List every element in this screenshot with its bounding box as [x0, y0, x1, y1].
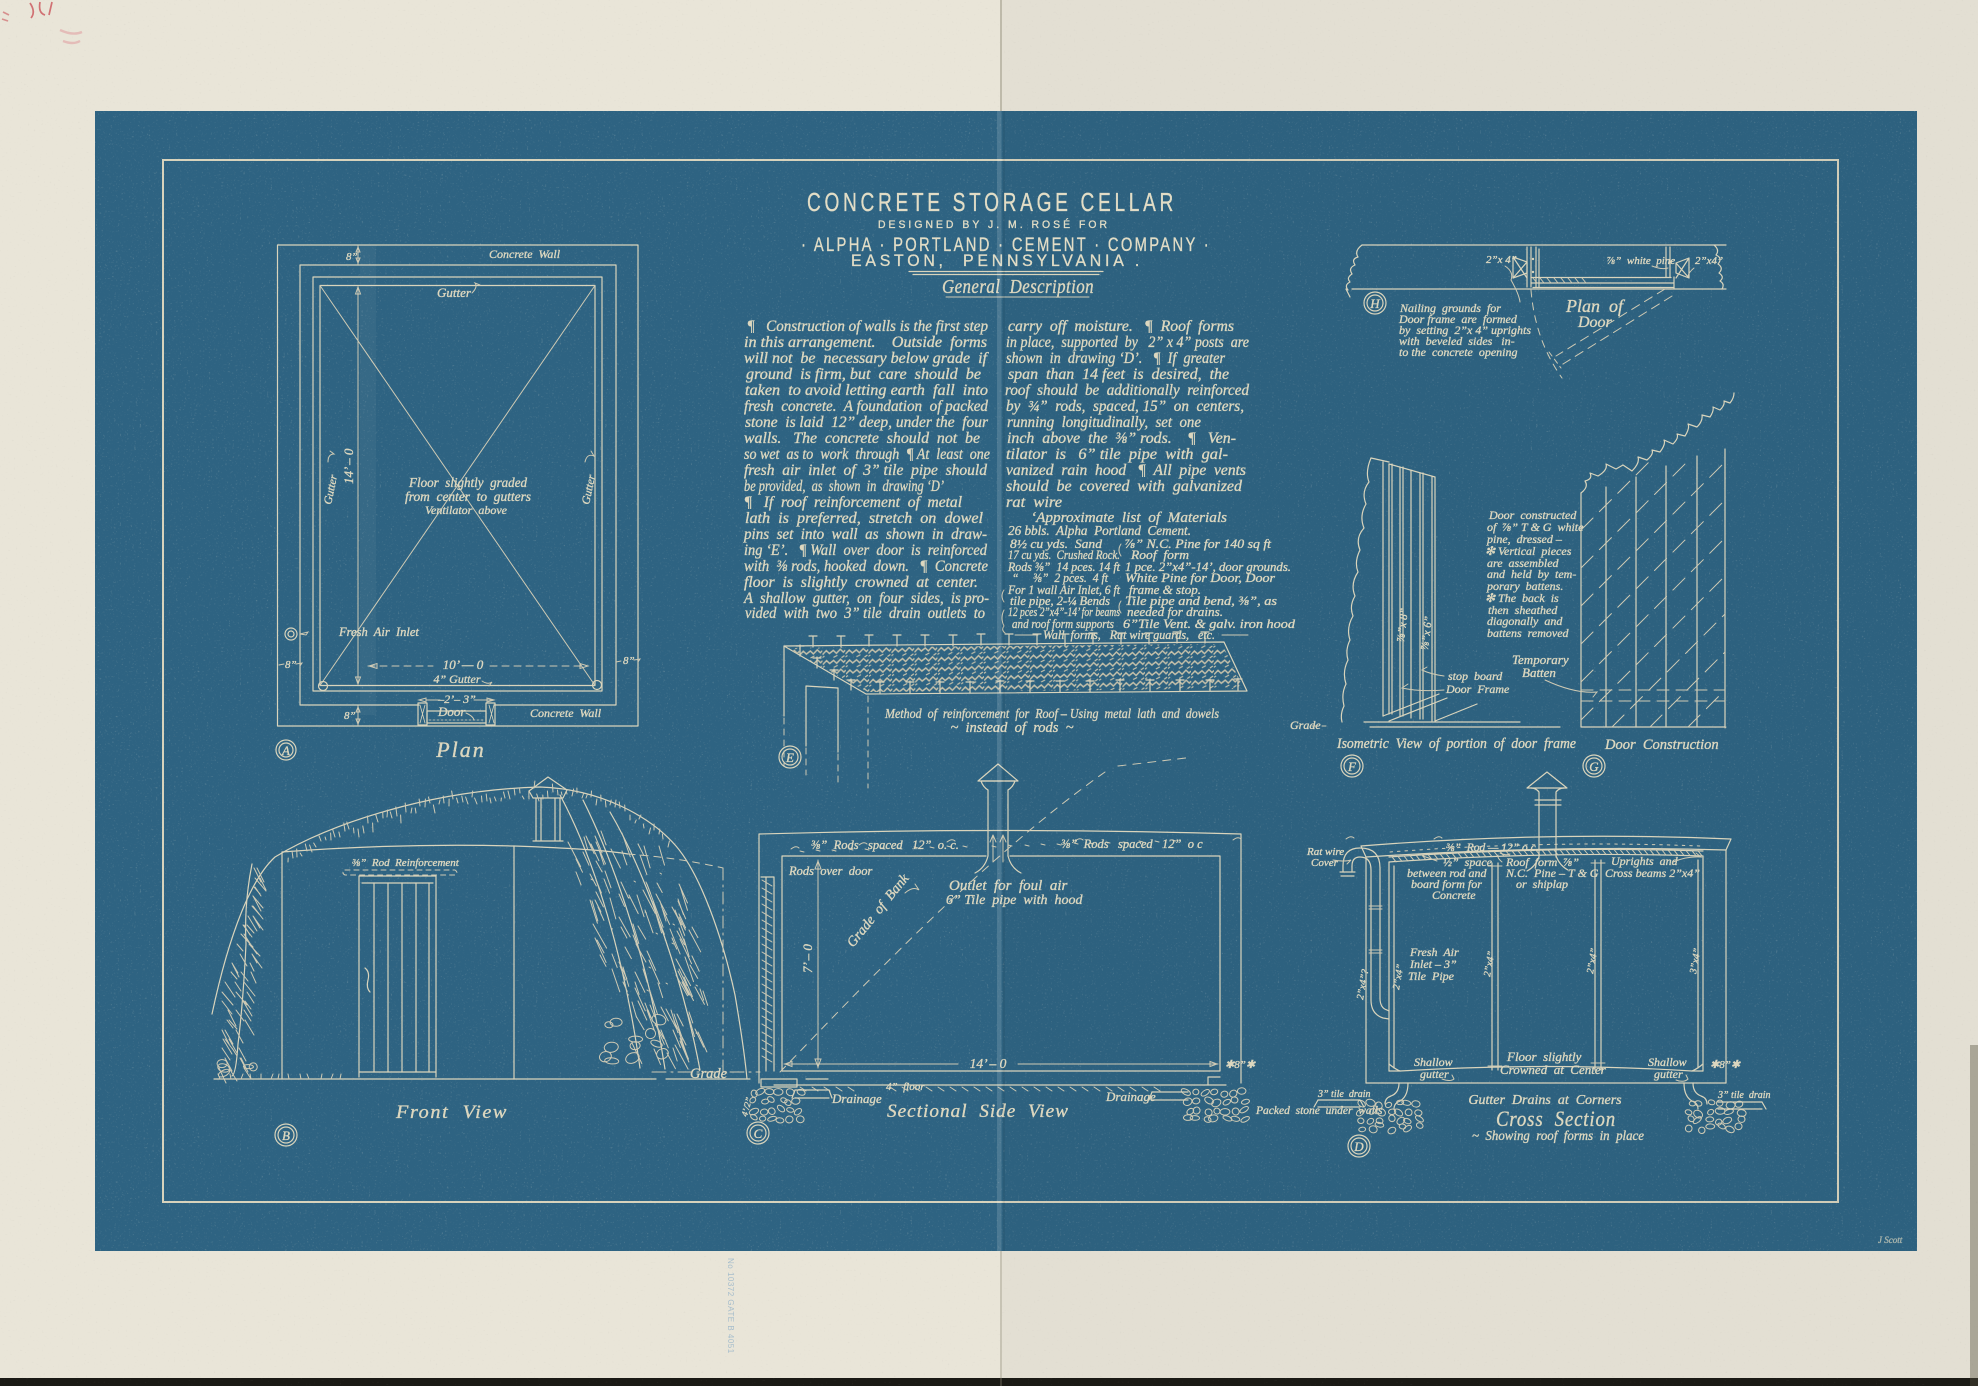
svg-text:to the concrete opening: to the concrete opening — [1399, 345, 1518, 359]
svg-text:✱8”✱: ✱8”✱ — [1225, 1059, 1256, 1071]
svg-text:ing ‘E’. ¶ Wall over door: ing ‘E’. ¶ Wall over door is reinforced — [744, 542, 987, 559]
svg-text:so wet as to work through: so wet as to work through ¶ At least one — [744, 446, 990, 463]
svg-text:Door: Door — [437, 704, 466, 719]
svg-text:Sectional Side View: Sectional Side View — [887, 1101, 1069, 1122]
svg-text:Cross beams 2”x4”: Cross beams 2”x4” — [1605, 866, 1700, 880]
svg-text:26 bbls. Alpha Portland Cem: 26 bbls. Alpha Portland Cement. — [1008, 523, 1191, 538]
svg-text:Door Construction: Door Construction — [1604, 737, 1719, 753]
svg-text:DESIGNED BY J. M. ROSÉ FOR: DESIGNED BY J. M. ROSÉ FOR — [878, 218, 1110, 231]
svg-text:10’ — 0: 10’ — 0 — [443, 657, 484, 672]
svg-text:Drainage: Drainage — [1105, 1089, 1156, 1104]
svg-text:in this arrangement. Outsid: in this arrangement. Outside forms — [744, 334, 987, 351]
svg-text:taken to avoid letting earth: taken to avoid letting earth fall into — [745, 382, 988, 399]
svg-text:inch above the ⅜” rods.: inch above the ⅜” rods. ¶ Ven- — [1007, 430, 1236, 447]
svg-text:walls. The concrete should: walls. The concrete should not be — [744, 430, 980, 447]
svg-text:Concrete Wall: Concrete Wall — [489, 247, 561, 261]
svg-text:Concrete: Concrete — [1432, 888, 1476, 902]
svg-text:8”: 8” — [346, 251, 358, 263]
svg-text:Fresh Air Inlet: Fresh Air Inlet — [338, 625, 419, 639]
svg-text:General Description: General Description — [942, 276, 1094, 298]
svg-text:by ¾” rods, spaced, 15” on: by ¾” rods, spaced, 15” on centers, — [1006, 398, 1244, 415]
svg-text:pins set into wall as sho: pins set into wall as shown in draw- — [743, 526, 987, 543]
svg-text:D: D — [1353, 1139, 1364, 1154]
svg-text:Crowned at Center: Crowned at Center — [1500, 1062, 1607, 1077]
svg-text:6” Tile pipe with hood: 6” Tile pipe with hood — [946, 893, 1084, 908]
svg-text:vanized rain hood ¶ All: vanized rain hood ¶ All pipe vents — [1006, 462, 1246, 479]
svg-text:B: B — [282, 1128, 290, 1143]
svg-text:E: E — [785, 750, 794, 765]
svg-text:gutter: gutter — [1420, 1067, 1449, 1081]
svg-text:with ⅜ rods, hooked down.: with ⅜ rods, hooked down. ¶ Concrete — [744, 558, 988, 575]
svg-text:Grade: Grade — [1290, 718, 1321, 732]
svg-text:3” tile drain: 3” tile drain — [1317, 1089, 1371, 1100]
svg-text:⅜” Rod — 12” o.c.: ⅜” Rod — 12” o.c. — [1446, 842, 1539, 854]
svg-text:ground is firm, but care sh: ground is firm, but care should be — [746, 366, 981, 383]
svg-text:⅜” Rods spaced 12” o c: ⅜” Rods spaced 12” o c — [1061, 837, 1203, 851]
svg-text:in place, supported by 2”: in place, supported by 2” x 4” posts are — [1006, 334, 1249, 351]
svg-text:3” tile drain: 3” tile drain — [1717, 1090, 1771, 1101]
svg-text:Outlet for foul air: Outlet for foul air — [949, 878, 1068, 894]
svg-text:running longitudinally, set: running longitudinally, set one — [1007, 414, 1201, 431]
svg-text:Cover: Cover — [1311, 857, 1339, 869]
svg-text:floor is slightly crowned: floor is slightly crowned at center. — [744, 574, 978, 591]
svg-text:⅜” Rods spaced 12” o. c.: ⅜” Rods spaced 12” o. c. — [811, 838, 959, 852]
svg-text:✱8”✱: ✱8”✱ — [1710, 1059, 1741, 1071]
svg-text:battens removed: battens removed — [1487, 626, 1570, 640]
svg-text:fresh concrete. A foundation: fresh concrete. A foundation of packed — [744, 398, 988, 415]
svg-text:rat wire: rat wire — [1006, 494, 1062, 511]
svg-text:be provided, as shown in d: be provided, as shown in drawing ‘D’ — [744, 478, 944, 495]
svg-text:14’ – 0: 14’ – 0 — [341, 448, 356, 484]
svg-text:Isometric View of portion: Isometric View of portion of door frame — [1336, 736, 1576, 752]
svg-text:CONCRETE STORAGE CELLAR: CONCRETE STORAGE CELLAR — [807, 187, 1177, 217]
svg-text:2”x 4”: 2”x 4” — [1486, 254, 1517, 266]
svg-text:Floor slightly graded: Floor slightly graded — [408, 475, 527, 490]
svg-text:Grade: Grade — [690, 1066, 728, 1082]
svg-text:Plan of: Plan of — [1565, 296, 1626, 316]
svg-text:¶ Construction of walls is t: ¶ Construction of walls is the first ste… — [747, 318, 988, 335]
svg-text:Door: Door — [1577, 314, 1613, 331]
svg-text:⅞” white pine: ⅞” white pine — [1607, 255, 1675, 267]
svg-text:2”x4”: 2”x4” — [1695, 255, 1723, 267]
svg-text:Tile Pipe: Tile Pipe — [1408, 969, 1455, 983]
svg-text:Drainage: Drainage — [831, 1091, 882, 1106]
svg-text:roof should be additionally: roof should be additionally reinforced — [1005, 382, 1249, 399]
svg-text:Wall forms, Rat wire guards: Wall forms, Rat wire guards, etc. — [1043, 628, 1215, 642]
svg-text:shown in drawing ‘D’. ¶ I: shown in drawing ‘D’. ¶ If greater — [1006, 350, 1226, 367]
svg-text:or shiplap: or shiplap — [1516, 877, 1568, 891]
svg-text:fresh air inlet of 3” tile: fresh air inlet of 3” tile pipe should — [744, 462, 987, 479]
svg-text:~ Showing roof forms in p: ~ Showing roof forms in place — [1472, 1128, 1644, 1143]
svg-text:should be covered with gal: should be covered with galvanized — [1006, 478, 1242, 495]
svg-text:J Scott: J Scott — [1878, 1235, 1903, 1245]
svg-text:vided with two 3” tile dra: vided with two 3” tile drain outlets to — [745, 605, 985, 622]
svg-text:8”: 8” — [285, 659, 297, 671]
svg-text:stop board: stop board — [1448, 669, 1503, 683]
svg-text:¶ If roof reinforcement o: ¶ If roof reinforcement of metal — [744, 494, 962, 511]
svg-text:~ instead of rods ~: ~ instead of rods ~ — [950, 720, 1073, 736]
svg-text:from center to gutters: from center to gutters — [405, 489, 531, 504]
svg-text:Rods over door: Rods over door — [788, 864, 872, 878]
svg-text:Ventilator above: Ventilator above — [425, 505, 507, 517]
svg-text:Batten: Batten — [1522, 665, 1556, 680]
svg-text:7’ – 0: 7’ – 0 — [800, 944, 815, 973]
svg-text:H: H — [1369, 296, 1380, 311]
svg-text:8”: 8” — [623, 655, 635, 667]
svg-text:will not be necessary below: will not be necessary below grade if — [744, 350, 990, 367]
svg-text:lath is preferred, stretch: lath is preferred, stretch on dowel — [745, 510, 983, 527]
svg-text:gutter: gutter — [1654, 1067, 1683, 1081]
svg-text:stone is laid 12” deep, unde: stone is laid 12” deep, under the four — [745, 414, 989, 431]
svg-text:Front View: Front View — [395, 1102, 508, 1123]
svg-text:tilator is 6” tile pipe w: tilator is 6” tile pipe with gal- — [1006, 446, 1228, 463]
svg-text:Door Frame: Door Frame — [1445, 682, 1510, 696]
svg-text:span than 14 feet is desir: span than 14 feet is desired, the — [1008, 366, 1229, 383]
svg-text:C: C — [754, 1126, 763, 1141]
svg-text:8”: 8” — [344, 710, 356, 722]
svg-text:Concrete Wall: Concrete Wall — [530, 706, 602, 720]
svg-text:No 10372 GATE B 4051: No 10372 GATE B 4051 — [726, 1258, 735, 1354]
svg-text:A: A — [281, 743, 290, 758]
svg-text:G: G — [1589, 759, 1599, 774]
svg-text:Plan: Plan — [435, 737, 486, 762]
svg-text:4” Gutter: 4” Gutter — [433, 672, 480, 686]
svg-text:⅜” Rod Reinforcement: ⅜” Rod Reinforcement — [352, 857, 460, 869]
svg-text:F: F — [1347, 759, 1357, 774]
svg-text:4” floor: 4” floor — [886, 1081, 925, 1093]
svg-text:Gutter: Gutter — [437, 285, 472, 300]
svg-text:carry off moisture. ¶ Roo: carry off moisture. ¶ Roof forms — [1008, 318, 1234, 335]
